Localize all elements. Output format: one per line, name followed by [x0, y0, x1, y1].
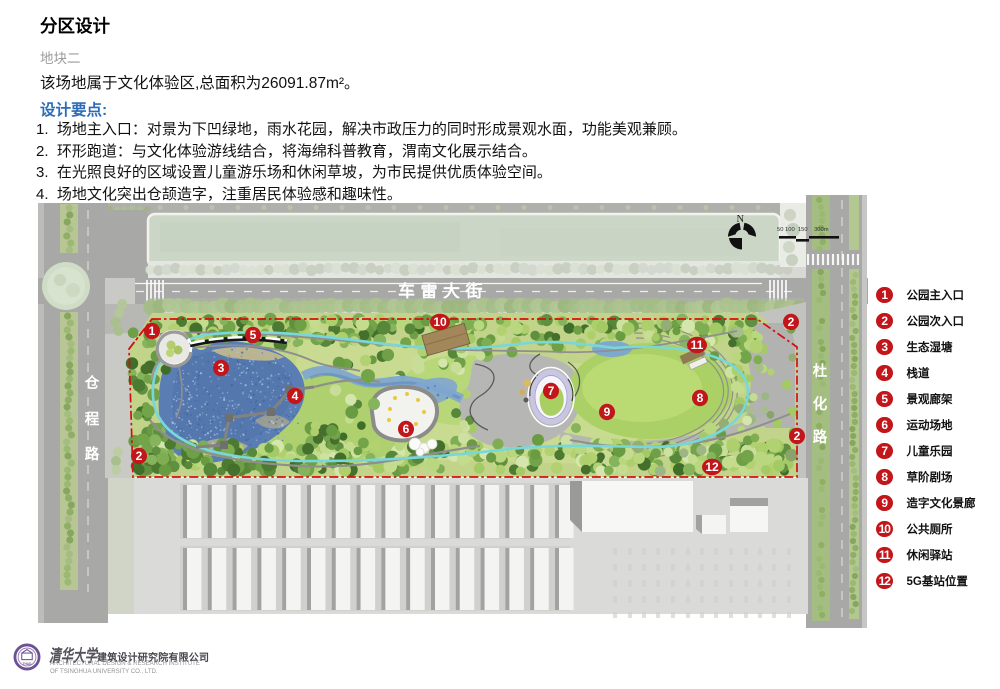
- svg-text:4: 4: [292, 389, 299, 403]
- svg-text:程: 程: [85, 411, 100, 428]
- svg-text:仓: 仓: [84, 374, 100, 392]
- svg-text:5: 5: [250, 328, 257, 342]
- svg-text:12: 12: [705, 460, 719, 474]
- svg-text:3: 3: [218, 361, 225, 375]
- svg-text:9: 9: [604, 405, 611, 419]
- svg-text:7: 7: [548, 384, 555, 398]
- svg-text:2: 2: [794, 429, 801, 443]
- svg-text:10: 10: [433, 315, 447, 329]
- svg-text:8: 8: [697, 391, 704, 405]
- svg-text:化: 化: [813, 395, 828, 413]
- svg-text:1: 1: [149, 324, 156, 338]
- svg-text:11: 11: [691, 338, 704, 352]
- svg-text:路: 路: [85, 445, 100, 463]
- svg-text:6: 6: [403, 422, 410, 436]
- svg-text:50 100 150 300m: 50 100 150 300m: [777, 227, 829, 233]
- svg-text:杜: 杜: [813, 362, 828, 380]
- svg-text:路: 路: [813, 428, 828, 446]
- svg-text:THAD: THAD: [23, 662, 32, 666]
- svg-text:2: 2: [788, 315, 795, 329]
- svg-text:2: 2: [136, 449, 143, 463]
